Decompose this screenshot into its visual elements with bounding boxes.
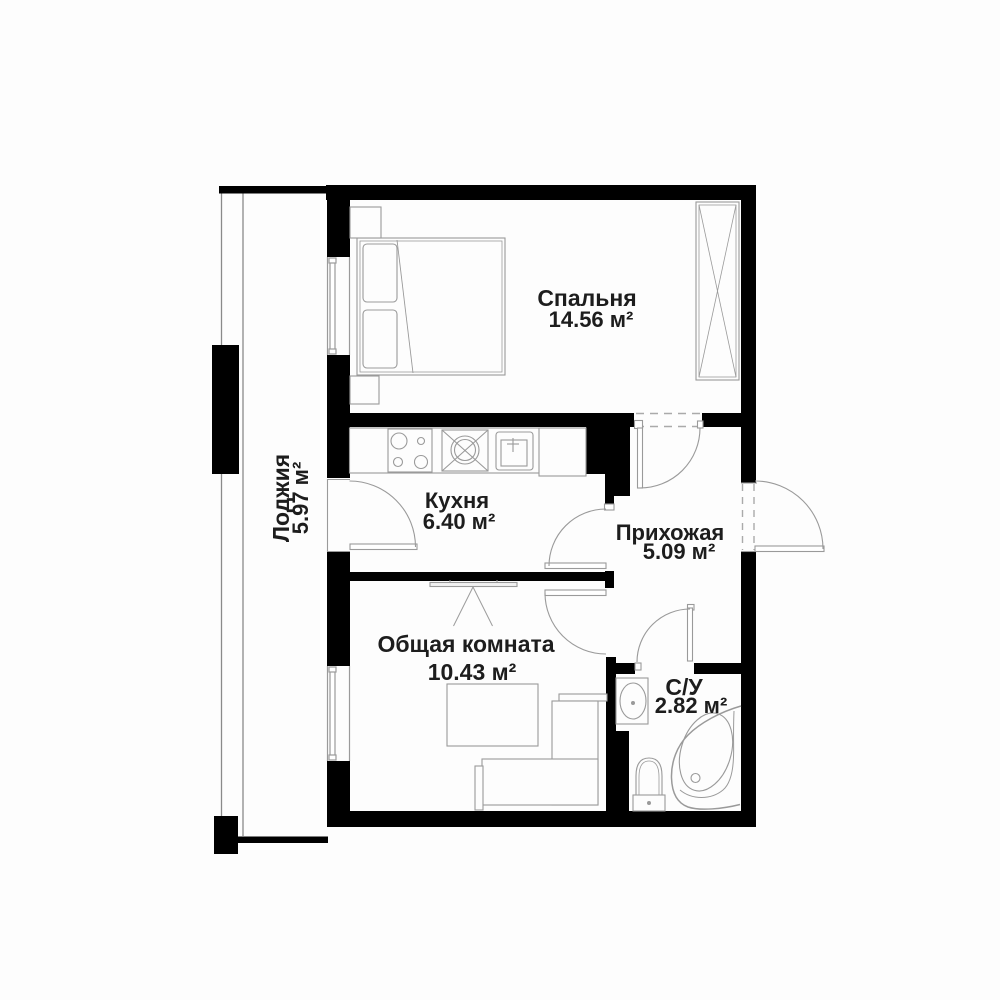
svg-text:6.40 м²: 6.40 м² bbox=[423, 509, 496, 534]
svg-text:2.82 м²: 2.82 м² bbox=[655, 693, 728, 718]
svg-text:5.09 м²: 5.09 м² bbox=[643, 539, 716, 564]
svg-text:5.97 м²: 5.97 м² bbox=[288, 462, 313, 535]
svg-text:14.56 м²: 14.56 м² bbox=[549, 307, 634, 332]
svg-text:10.43 м²: 10.43 м² bbox=[428, 659, 517, 685]
svg-text:Общая комната: Общая комната bbox=[377, 631, 554, 657]
